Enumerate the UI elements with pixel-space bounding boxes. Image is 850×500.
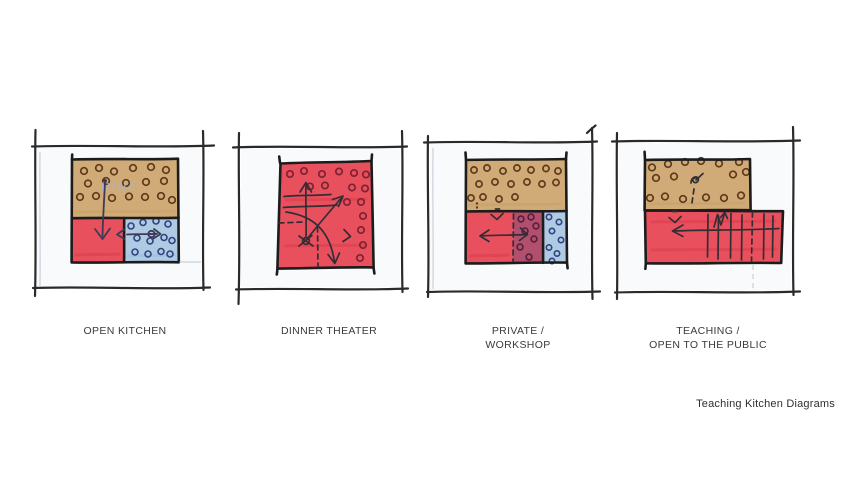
diagram-teaching-open-sketch [612,127,800,299]
sheet-caption: Teaching Kitchen Diagrams [635,398,835,410]
label-open-kitchen: OPEN KITCHEN [45,324,205,338]
teaching-zone-fill [645,211,783,264]
label-private-workshop: PRIVATE / WORKSHOP [438,324,598,352]
pencil-dot [476,206,478,208]
sketch-svg: DINE [0,0,850,500]
pencil-dot [476,202,478,204]
diagram-dinner-theater-sketch [233,131,408,304]
teaching-kitchen-diagram-sheet: DINE [0,0,850,500]
label-dinner-theater: DINNER THEATER [249,324,409,338]
diagram-private-workshop-sketch [424,126,600,300]
label-teaching-open: TEACHING / OPEN TO THE PUBLIC [608,324,808,352]
diagram-open-kitchen-sketch: DINE [32,130,214,296]
